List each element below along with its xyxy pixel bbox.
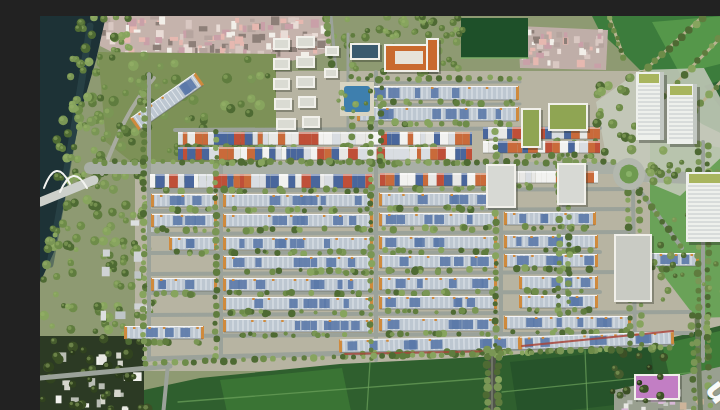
- apartment-block-12: [324, 68, 340, 80]
- twin-tower-west: [636, 72, 667, 143]
- hotel-tower: [686, 172, 720, 245]
- masterplan-scene-canvas: [40, 16, 720, 410]
- swimming-pool: [344, 86, 370, 112]
- apartment-block-7: [274, 98, 294, 112]
- apartment-block-8: [298, 96, 318, 110]
- apartment-block-3: [273, 58, 292, 72]
- apartment-block-5: [273, 78, 292, 92]
- street-h3: [358, 82, 520, 83]
- commercial-long-building: [614, 234, 654, 304]
- aerial-masterplan-render: ue: [40, 16, 720, 410]
- sports-field: [461, 18, 528, 58]
- office-block-2: [557, 163, 588, 207]
- apartment-block-9: [276, 118, 298, 132]
- school-courtyard: [395, 51, 423, 64]
- green-roof-midrise-1: [521, 108, 543, 150]
- school-building-blue: [350, 43, 382, 62]
- apartment-block-2: [296, 36, 317, 50]
- apartment-block-1: [273, 38, 292, 52]
- apartment-block-11: [325, 46, 341, 58]
- apartment-block-10: [302, 116, 322, 130]
- apartment-block-6: [296, 76, 317, 90]
- apartment-block-4: [296, 56, 317, 70]
- twin-tower-east: [667, 84, 700, 147]
- green-roof-midrise-2: [548, 103, 590, 133]
- office-block-1: [486, 164, 518, 210]
- roundabout-center: [626, 171, 632, 177]
- school-wing-orange: [426, 38, 441, 74]
